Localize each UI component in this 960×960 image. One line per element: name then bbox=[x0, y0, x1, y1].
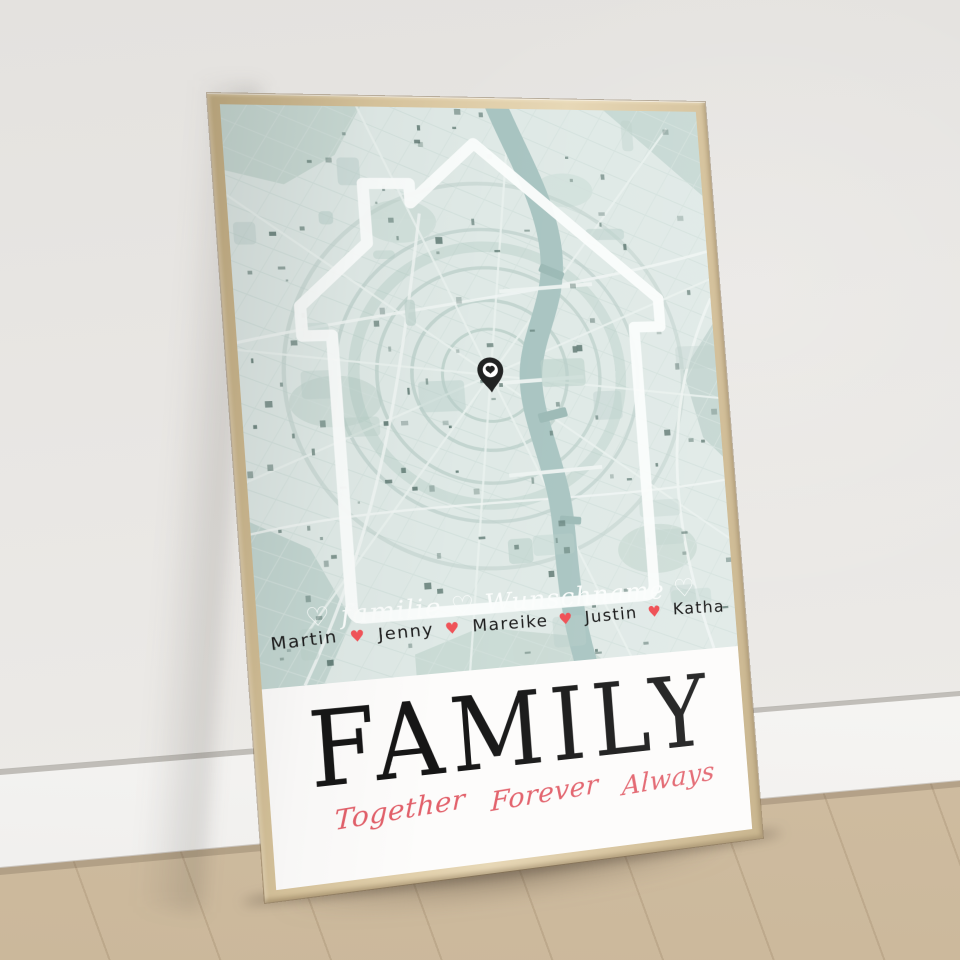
heart-icon: ♥ bbox=[444, 618, 461, 638]
map-section: ♡ familie ♡ Wunschname ♡ Martin ♥ Jenny … bbox=[220, 104, 738, 689]
framed-map-poster: ♡ familie ♡ Wunschname ♡ Martin ♥ Jenny … bbox=[207, 93, 763, 903]
heart-icon: ♥ bbox=[558, 609, 575, 628]
heart-icon: ♥ bbox=[349, 625, 367, 645]
heart-icon: ♥ bbox=[647, 601, 663, 620]
name-label: Katha bbox=[672, 597, 725, 619]
room-scene: ♡ familie ♡ Wunschname ♡ Martin ♥ Jenny … bbox=[0, 0, 960, 960]
poster-paper: ♡ familie ♡ Wunschname ♡ Martin ♥ Jenny … bbox=[220, 104, 752, 890]
